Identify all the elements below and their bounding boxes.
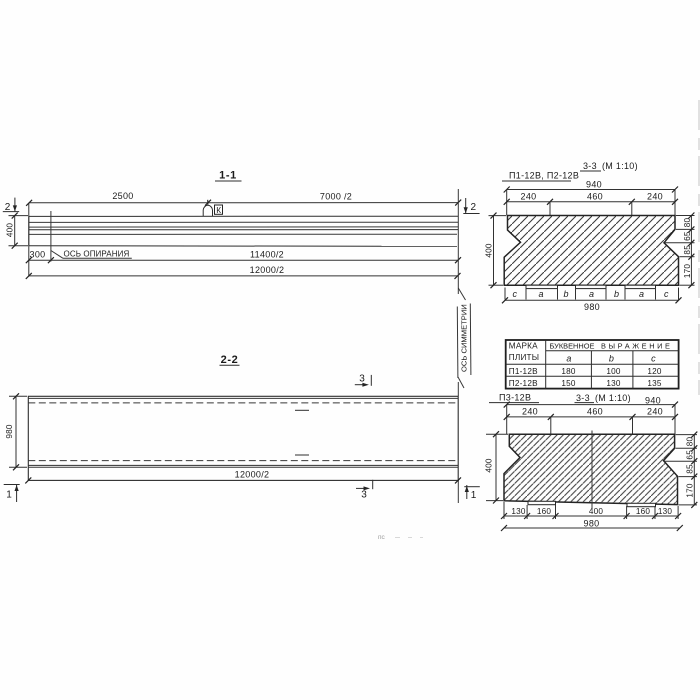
svg-text:ОСЬ ОПИРАНИЯ: ОСЬ ОПИРАНИЯ [64, 250, 130, 259]
svg-text:b: b [614, 289, 619, 299]
svg-text:130: 130 [511, 507, 526, 516]
svg-text:460: 460 [587, 407, 603, 417]
svg-text:2: 2 [471, 202, 477, 213]
svg-text:400: 400 [589, 507, 604, 516]
svg-text:c: c [664, 289, 669, 299]
svg-text:130: 130 [606, 379, 621, 388]
svg-text:180: 180 [561, 367, 576, 376]
svg-text:85: 85 [683, 245, 692, 255]
svg-text:460: 460 [587, 192, 603, 202]
svg-text:400: 400 [485, 458, 494, 473]
svg-text:80: 80 [686, 437, 695, 447]
svg-text:240: 240 [522, 407, 538, 417]
svg-text:1: 1 [471, 490, 477, 501]
svg-text:120: 120 [647, 367, 662, 376]
svg-text:a: a [566, 354, 571, 364]
svg-text:пс: пс [378, 534, 386, 541]
svg-text:П1-12В: П1-12В [509, 367, 538, 376]
svg-text:980: 980 [584, 302, 600, 312]
svg-text:12000/2: 12000/2 [235, 470, 270, 480]
svg-text:(М 1:10): (М 1:10) [602, 161, 638, 171]
svg-text:980: 980 [5, 424, 14, 439]
svg-text:85: 85 [686, 464, 695, 474]
svg-text:ПЛИТЫ: ПЛИТЫ [509, 353, 539, 362]
svg-text:1: 1 [6, 490, 12, 501]
svg-text:940: 940 [586, 180, 602, 190]
svg-text:100: 100 [606, 367, 621, 376]
svg-text:240: 240 [521, 192, 537, 202]
svg-text:65: 65 [683, 231, 692, 241]
svg-text:170: 170 [683, 264, 692, 279]
svg-text:3-3: 3-3 [583, 161, 597, 171]
svg-text:65: 65 [686, 450, 695, 460]
svg-text:400: 400 [6, 223, 15, 238]
svg-text:7000 /2: 7000 /2 [320, 191, 352, 201]
svg-text:П1-12В, П2-12В: П1-12В, П2-12В [509, 171, 579, 181]
svg-text:135: 135 [647, 379, 662, 388]
svg-text:c: c [651, 354, 656, 364]
svg-text:c: c [513, 289, 518, 299]
svg-text:80: 80 [683, 218, 692, 228]
svg-text:11400/2: 11400/2 [250, 250, 284, 260]
svg-text:130: 130 [658, 507, 673, 516]
svg-text:240: 240 [647, 192, 663, 202]
svg-text:b: b [564, 289, 569, 299]
svg-text:400: 400 [485, 243, 494, 258]
svg-text:2500: 2500 [112, 191, 133, 201]
svg-text:240: 240 [647, 407, 663, 417]
svg-text:160: 160 [537, 507, 552, 516]
svg-text:3: 3 [361, 490, 367, 501]
svg-text:160: 160 [636, 507, 651, 516]
svg-text:3: 3 [359, 373, 365, 384]
svg-text:b: b [609, 354, 614, 364]
svg-text:К: К [216, 206, 221, 215]
svg-text:12000/2: 12000/2 [250, 265, 285, 275]
svg-text:a: a [639, 289, 644, 299]
svg-text:3-3: 3-3 [576, 393, 590, 403]
svg-text:(М 1:10): (М 1:10) [595, 393, 631, 403]
svg-text:2: 2 [5, 202, 11, 213]
svg-text:300: 300 [30, 249, 46, 259]
svg-text:П2-12В: П2-12В [509, 379, 538, 388]
svg-text:МАРКА: МАРКА [509, 342, 538, 351]
svg-text:ВЫРАЖЕНИЕ: ВЫРАЖЕНИЕ [601, 341, 673, 350]
svg-text:150: 150 [561, 379, 576, 388]
svg-text:ОСЬ СИММЕТРИИ: ОСЬ СИММЕТРИИ [459, 304, 468, 372]
svg-text:170: 170 [686, 483, 695, 498]
svg-text:1-1: 1-1 [219, 170, 237, 182]
svg-text:2-2: 2-2 [221, 354, 239, 366]
svg-text:a: a [589, 289, 594, 299]
svg-text:980: 980 [584, 519, 600, 529]
svg-text:П3-12В: П3-12В [499, 393, 531, 403]
svg-text:a: a [539, 289, 544, 299]
svg-text:БУКВЕННОЕ: БУКВЕННОЕ [550, 341, 595, 350]
